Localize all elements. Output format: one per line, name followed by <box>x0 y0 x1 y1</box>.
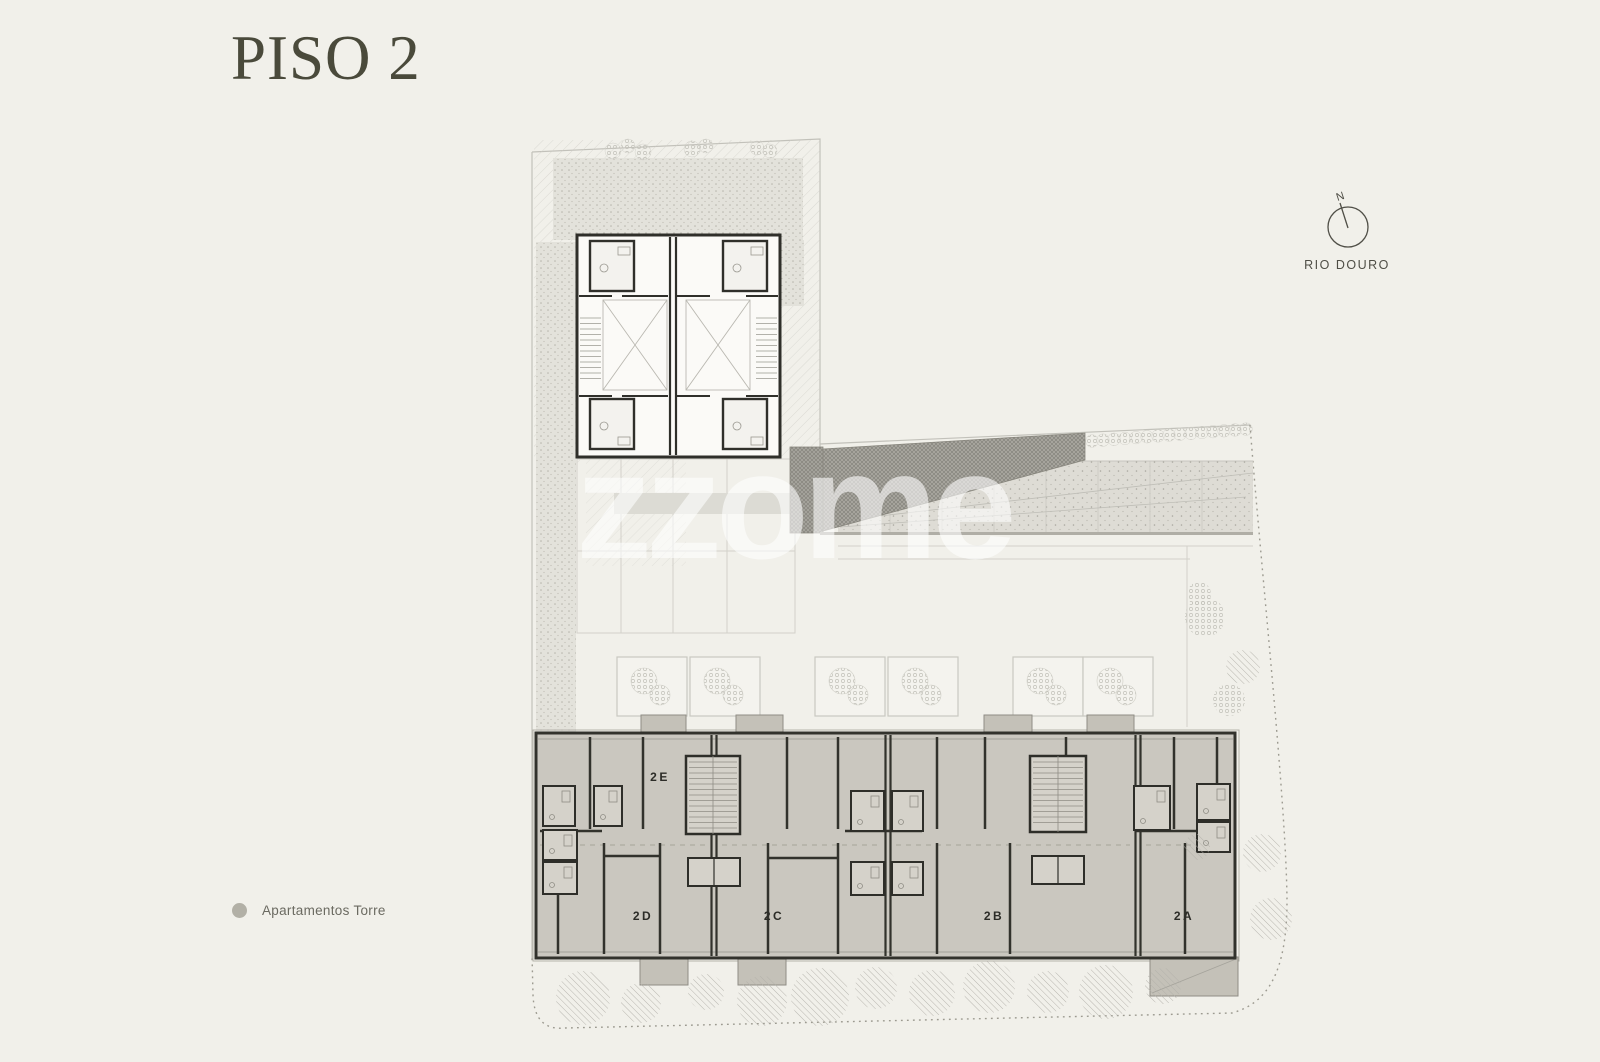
apartment-block: 2E 2D 2C 2B 2A <box>533 715 1239 996</box>
bathroom-pod <box>594 786 622 826</box>
unit-label-2E: 2E <box>650 770 670 784</box>
hedge-icon <box>1152 430 1165 443</box>
river-label: RIO DOURO <box>1304 258 1390 272</box>
stair-core-1 <box>686 756 740 886</box>
tree-icon <box>1213 684 1245 716</box>
tree-cluster-icon <box>605 143 621 159</box>
shrub-icon <box>1250 898 1292 940</box>
tree-cluster-icon <box>621 139 635 153</box>
shrub-icon <box>963 961 1015 1013</box>
planter-tree-icon <box>921 685 941 705</box>
compass-north-label: N <box>1335 190 1346 204</box>
hedge-icon <box>1119 432 1132 445</box>
shrub-icon <box>556 971 610 1025</box>
stair-core-2 <box>1030 756 1086 884</box>
shrub-icon <box>1226 650 1260 684</box>
planter-tree-icon <box>1116 685 1136 705</box>
tree-cluster-icon <box>635 144 651 160</box>
hedge-icon <box>1207 425 1220 438</box>
hedge-icon <box>1097 434 1110 447</box>
tree-cluster-icon <box>763 144 777 158</box>
hedge-row-icons <box>1086 423 1253 448</box>
hedge-icon <box>1185 427 1198 440</box>
planter-tree-icon <box>650 685 670 705</box>
shrub-icon <box>1027 971 1069 1013</box>
hedge-icon <box>1130 431 1143 444</box>
unit-label-2A: 2A <box>1174 909 1194 923</box>
legend: Apartamentos Torre <box>232 903 386 918</box>
hedge-icon <box>1108 433 1121 446</box>
tree-cluster-icon <box>684 141 700 157</box>
hedge-icon <box>1229 424 1242 437</box>
shrub-icon <box>621 983 661 1023</box>
planter-tree-icon <box>848 685 868 705</box>
hedge-icon <box>1196 426 1209 439</box>
balcony-tabs-top <box>641 715 1134 734</box>
hedge-icon <box>1218 425 1231 438</box>
shrub-icon <box>791 968 849 1026</box>
shrub-icon <box>688 974 724 1010</box>
unit-label-2B: 2B <box>984 909 1004 923</box>
shrub-icon <box>1184 834 1210 860</box>
tree-icon <box>1187 582 1211 606</box>
hedge-icon <box>1086 435 1099 448</box>
shrub-icon <box>1145 968 1181 1004</box>
shrub-icon <box>1079 965 1133 1019</box>
bathroom-pod <box>1134 786 1170 830</box>
shrub-icon <box>909 970 955 1016</box>
hedge-icon <box>1240 423 1253 436</box>
shrub-icon <box>737 976 787 1026</box>
legend-dot-icon <box>232 903 247 918</box>
walkway-band <box>614 493 795 514</box>
tree-cluster-icon <box>750 141 764 155</box>
floor-plan-page: 2E 2D 2C 2B 2A N RIO DOURO PISO 2 zzome … <box>0 0 1600 1062</box>
tree-cluster-icon <box>699 139 713 153</box>
unit-label-2C: 2C <box>764 909 784 923</box>
tower-plan <box>577 235 780 457</box>
shrub-icon <box>855 967 897 1009</box>
unit-label-2D: 2D <box>633 909 653 923</box>
hedge-icon <box>1174 428 1187 441</box>
planter-tree-icon <box>1046 685 1066 705</box>
planter-tree-icon <box>723 685 743 705</box>
courtyard-planters <box>617 657 1153 716</box>
compass-rose: N RIO DOURO <box>1304 190 1390 272</box>
page-title: PISO 2 <box>231 22 421 95</box>
hedge-icon <box>1141 430 1154 443</box>
hedge-icon <box>1163 429 1176 442</box>
shrub-icon <box>1243 834 1281 872</box>
legend-label: Apartamentos Torre <box>262 903 386 918</box>
